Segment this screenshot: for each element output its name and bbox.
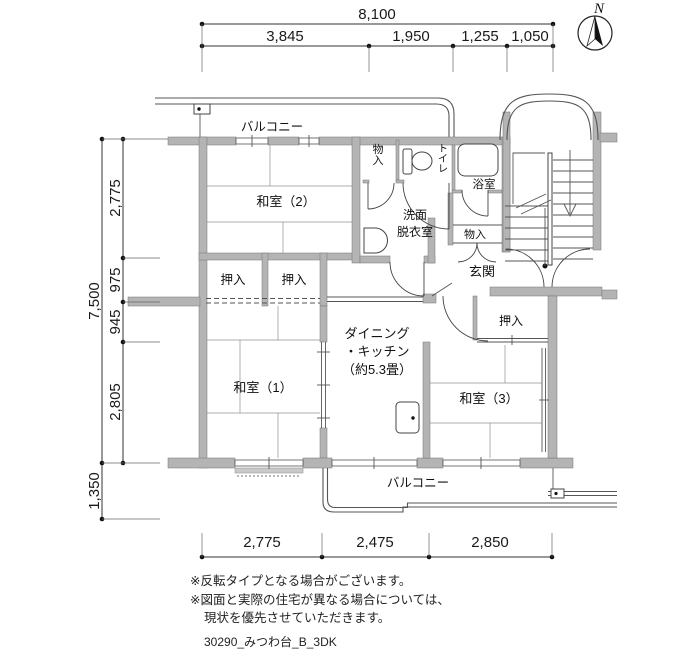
room-label-oshiire3: 押入: [499, 314, 523, 328]
toilet-tank-icon: [403, 149, 412, 174]
north-label: N: [593, 1, 605, 17]
note-line-1: ※反転タイプとなる場合がございます。: [190, 573, 411, 588]
balcony-drain-icon: [194, 104, 210, 114]
storage-door-icon: [368, 183, 394, 209]
dim-left-balcony: 1,350: [86, 472, 103, 510]
neighbor-door-icon: [552, 249, 590, 287]
note-line-2: ※図面と実際の住宅が異なる場合については、: [190, 592, 450, 607]
room-label-bath: 浴室: [473, 177, 496, 191]
room-label-storage-hall: 物入: [464, 227, 486, 241]
washbasin-icon: [364, 228, 388, 253]
toilet-bowl-icon: [412, 152, 432, 170]
floor-plan-svg: バルコニー バルコニー 和室（2） 和室（1） 和室（3） ダイニング ・キッチ…: [0, 0, 700, 650]
dim-top-seg1: 3,845: [266, 28, 304, 45]
staircase: [500, 94, 598, 269]
hall-closet-door-icon: [458, 243, 477, 262]
dim-top-seg2: 1,950: [392, 28, 430, 45]
entrance-door-icon: [506, 249, 544, 287]
balcony-top-label: バルコニー: [241, 120, 303, 134]
dim-bottom-seg3: 2,850: [471, 534, 509, 551]
dim-bottom-seg2: 2,475: [356, 534, 394, 551]
bathtub-icon: [458, 144, 498, 176]
room-label-senmen-1: 洗面: [403, 208, 427, 222]
stair-stringer: [548, 153, 552, 265]
plan-id: 30290_みつわ台_B_3DK: [204, 634, 337, 649]
notes: ※反転タイプとなる場合がございます。 ※図面と実際の住宅が異なる場合については、…: [190, 573, 450, 649]
dim-left-total: 7,500: [86, 282, 103, 320]
balcony-bottom: [235, 468, 617, 512]
room-label-oshiire2: 押入: [281, 273, 307, 287]
dk-door-icon: [443, 296, 488, 341]
dim-bottom-seg1: 2,775: [243, 534, 281, 551]
dim-top-seg3: 1,255: [461, 28, 499, 45]
room-label-toilet: トイレ: [438, 144, 448, 175]
room-label-oshiire1: 押入: [220, 273, 246, 287]
room-label-washitsu1: 和室（1）: [233, 380, 292, 395]
compass-rose: N: [578, 1, 612, 50]
dim-top-seg4: 1,050: [511, 28, 549, 45]
dim-top-total: 8,100: [358, 6, 396, 23]
room-label-genkan: 玄関: [469, 264, 495, 279]
toilet-door-icon: [403, 183, 449, 229]
room-label-dk-3: （約5.3畳）: [342, 362, 412, 377]
dim-left-seg1: 2,775: [107, 179, 124, 217]
hall-closet-door-icon: [477, 243, 496, 262]
dimension-top: 8,100 3,845 1,950 1,255 1,050: [200, 6, 556, 72]
dimension-bottom: 2,775 2,475 2,850: [200, 533, 555, 559]
balcony-bottom-label: バルコニー: [387, 476, 449, 490]
compass-needle-icon: [595, 16, 603, 46]
room-label-senmen-2: 脱衣室: [397, 224, 433, 239]
room-label-dk-2: ・キッチン: [344, 344, 409, 359]
dim-left-seg4: 2,805: [107, 383, 124, 421]
note-line-3: 現状を優先させていただきます。: [204, 611, 390, 625]
room-label-washitsu2: 和室（2）: [256, 194, 315, 209]
room-label-dk-1: ダイニング: [344, 326, 409, 341]
bath-door-icon: [462, 190, 488, 216]
washroom-door-icon: [390, 262, 424, 296]
kitchen-sink-icon: [396, 402, 419, 433]
dim-left-seg2: 975: [107, 267, 124, 292]
room-label-washitsu3: 和室（3）: [459, 391, 518, 406]
dimension-left: 7,500 2,775 975 945 2,805 1,350: [86, 137, 168, 522]
room-label-storage-top: 物入: [373, 142, 384, 167]
balcony-top: [155, 98, 454, 137]
dim-left-seg3: 945: [107, 309, 124, 334]
floorplan-page: バルコニー バルコニー 和室（2） 和室（1） 和室（3） ダイニング ・キッチ…: [0, 0, 700, 650]
